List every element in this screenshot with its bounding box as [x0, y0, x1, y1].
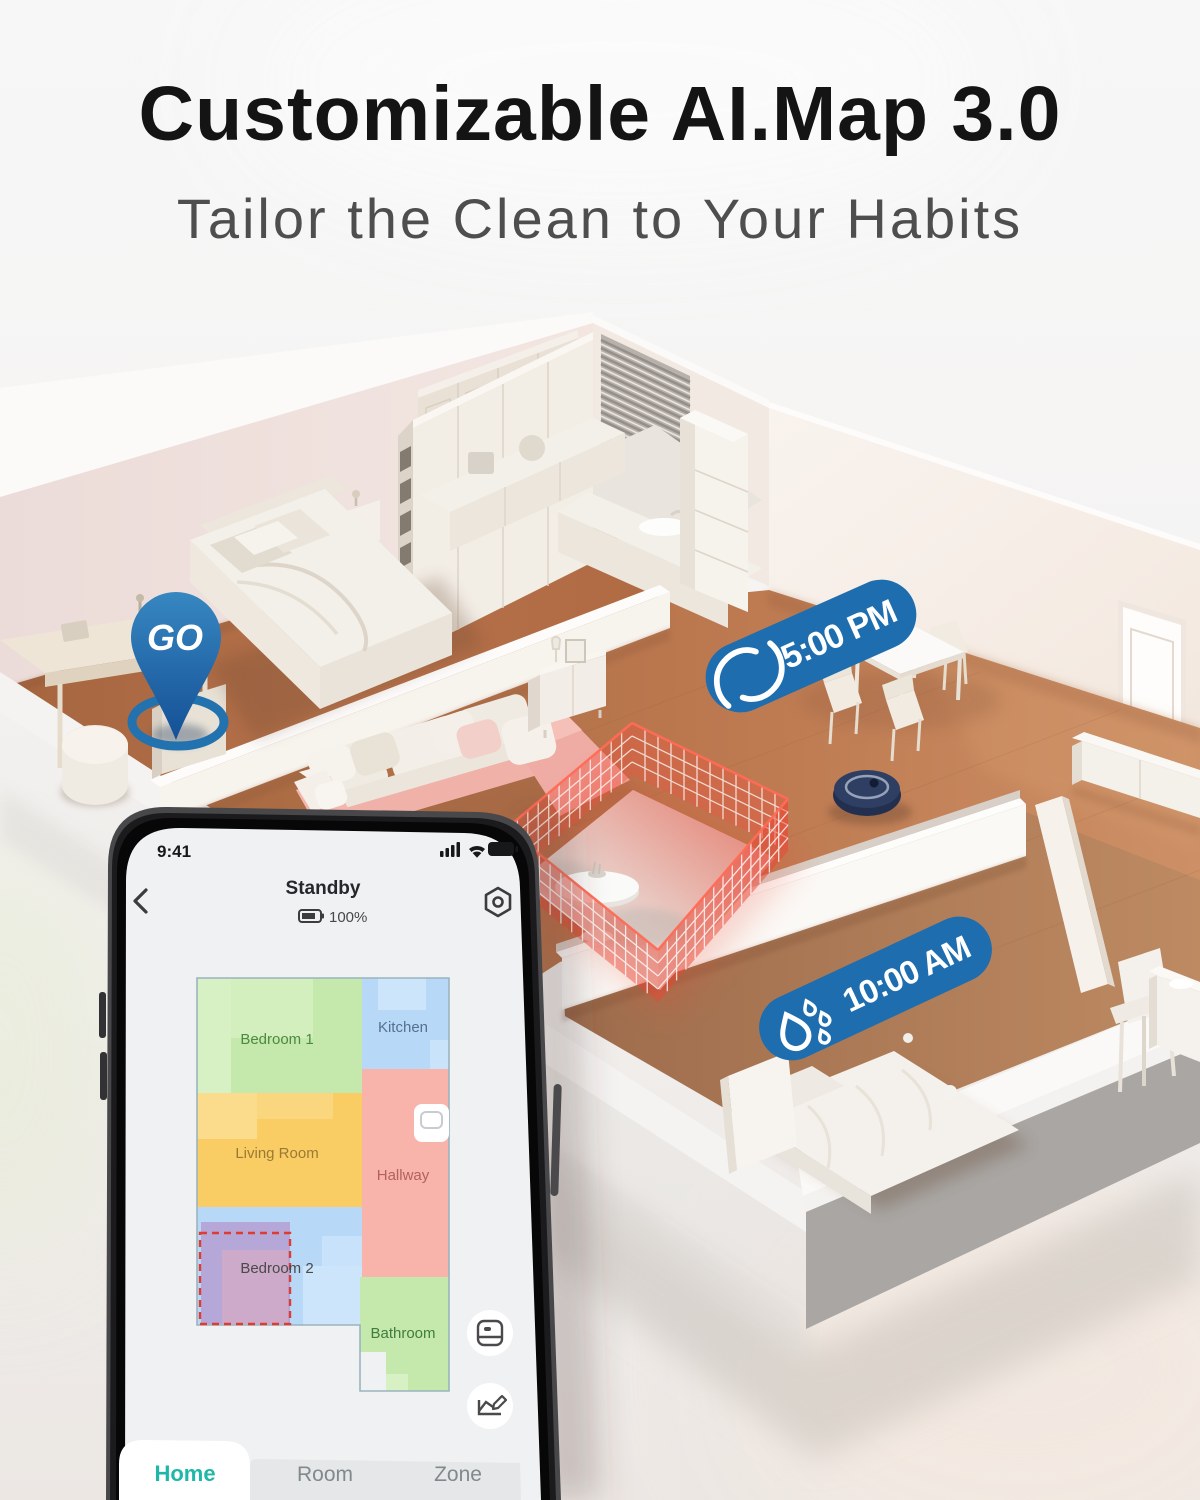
svg-text:Home: Home — [154, 1461, 215, 1486]
svg-text:GO: GO — [147, 617, 203, 658]
svg-text:9:41: 9:41 — [157, 842, 191, 861]
svg-text:Kitchen: Kitchen — [378, 1019, 428, 1036]
svg-text:Standby: Standby — [286, 878, 361, 899]
svg-text:Zone: Zone — [434, 1463, 482, 1486]
svg-text:Bedroom 1: Bedroom 1 — [240, 1031, 313, 1048]
svg-text:Hallway: Hallway — [377, 1167, 430, 1184]
svg-text:Room: Room — [297, 1463, 353, 1486]
svg-text:100%: 100% — [329, 909, 367, 926]
svg-text:Living Room: Living Room — [235, 1145, 318, 1162]
svg-text:Bathroom: Bathroom — [370, 1325, 435, 1342]
svg-text:Bedroom 2: Bedroom 2 — [240, 1260, 313, 1277]
